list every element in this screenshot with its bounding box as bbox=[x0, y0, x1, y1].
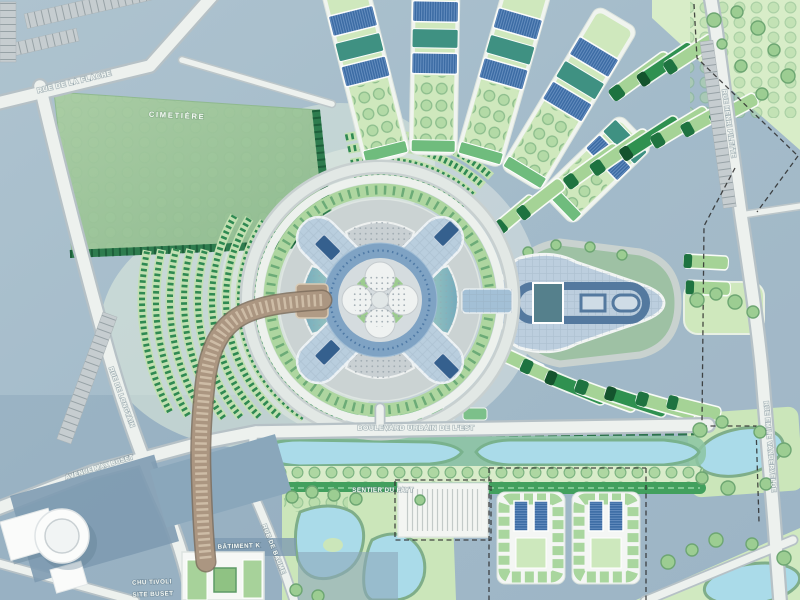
label-site-buset: SITE BUSET bbox=[132, 590, 173, 598]
canal-pond-east bbox=[476, 440, 699, 465]
canal-band bbox=[258, 433, 706, 482]
label-boulevard-urbain: BOULEVARD URBAIN DE L'EST bbox=[358, 425, 475, 432]
label-chu-tivoli: CHU TIVOLI bbox=[132, 578, 172, 586]
road-boulevard-urbain bbox=[256, 425, 708, 432]
paddle-building bbox=[499, 240, 678, 364]
canal-pond-west bbox=[262, 440, 462, 466]
housing-cluster-2 bbox=[572, 492, 640, 584]
housing-cluster-1 bbox=[497, 492, 565, 584]
masterplan-map: CIMETIÈRE RUE DE LA FLACHE RUE DE LONGTA… bbox=[0, 0, 800, 600]
east-bridge bbox=[462, 289, 512, 313]
map-canvas: CIMETIÈRE RUE DE LA FLACHE RUE DE LONGTA… bbox=[0, 0, 800, 600]
label-sentier-du-fayt: SENTIER DU FAYT bbox=[352, 487, 413, 494]
